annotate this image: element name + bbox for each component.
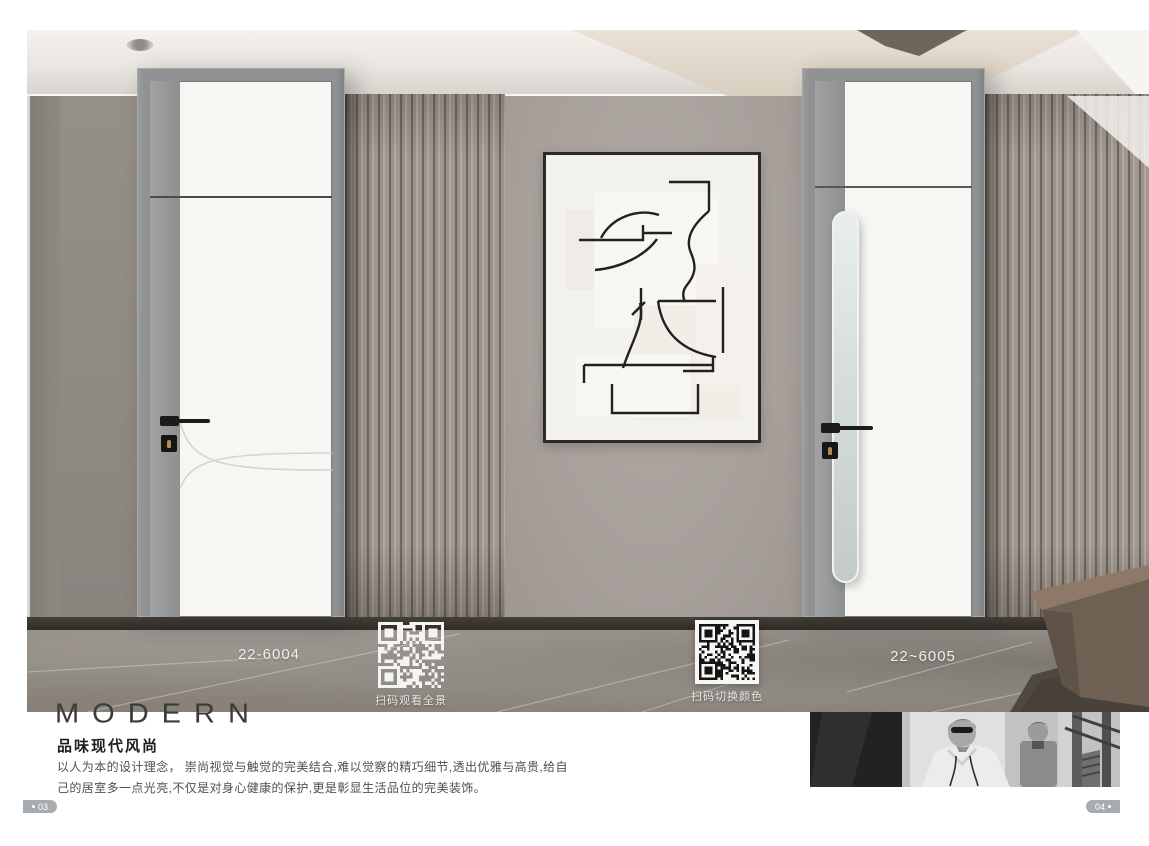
left-side-wall bbox=[30, 96, 60, 617]
lifestyle-photo bbox=[810, 712, 1120, 787]
door-right bbox=[802, 68, 985, 617]
downlight-icon bbox=[127, 39, 153, 51]
page-number-left: 03 bbox=[23, 800, 57, 813]
qr-code-panorama bbox=[378, 622, 444, 688]
door-right-groove-line bbox=[815, 186, 972, 188]
left-wall bbox=[60, 96, 137, 617]
section-heading: 品味现代风尚 bbox=[57, 735, 159, 756]
page-number-right-value: 04 bbox=[1095, 802, 1105, 812]
slat-shadow bbox=[985, 94, 999, 617]
badge-dot bbox=[32, 805, 35, 808]
section-body-line1: 以人为本的设计理念， 崇尚视觉与触觉的完美结合,难以觉察的精巧细节,透出优雅与高… bbox=[57, 757, 568, 778]
catalog-spread: 扫码观看全景 扫码切换颜色 22-6004 22~6005 MODERN 品味现… bbox=[0, 0, 1149, 846]
lifestyle-photo-art bbox=[810, 712, 1120, 787]
slat-panel-left bbox=[345, 94, 505, 617]
door-left-curved-grooves bbox=[150, 81, 332, 617]
section-body: 以人为本的设计理念， 崇尚视觉与触觉的完美结合,难以觉察的精巧细节,透出优雅与高… bbox=[57, 757, 568, 799]
door-right-lock bbox=[822, 442, 838, 459]
page-number-left-value: 03 bbox=[38, 802, 48, 812]
door-right-leaf bbox=[815, 81, 972, 617]
baseboard bbox=[27, 617, 1149, 630]
door-left-handle-lever bbox=[172, 419, 210, 423]
door-right-model-label: 22~6005 bbox=[833, 648, 1013, 665]
qr-code-color-switch-pattern bbox=[699, 624, 755, 680]
door-left-lock bbox=[161, 435, 177, 452]
bench bbox=[1002, 535, 1149, 712]
door-right-glass-capsule bbox=[832, 211, 859, 583]
keyhole-icon bbox=[828, 447, 832, 455]
qr-panorama-caption: 扫码观看全景 bbox=[341, 692, 481, 708]
qr-code-color-switch bbox=[695, 620, 759, 684]
door-left-model-label: 22-6004 bbox=[179, 646, 359, 663]
door-right-handle-lever bbox=[833, 426, 873, 430]
door-left bbox=[137, 68, 345, 617]
wall-art bbox=[546, 155, 758, 440]
slat-shadow bbox=[345, 94, 359, 617]
qr-color-caption: 扫码切换颜色 bbox=[657, 688, 797, 704]
brand-word: MODERN bbox=[55, 699, 262, 731]
interior-photo: 扫码观看全景 扫码切换颜色 22-6004 22~6005 bbox=[27, 30, 1149, 712]
page-number-right: 04 bbox=[1086, 800, 1120, 813]
keyhole-icon bbox=[167, 440, 171, 448]
door-left-leaf bbox=[150, 81, 332, 617]
wall-art-frame bbox=[543, 152, 761, 443]
badge-dot bbox=[1108, 805, 1111, 808]
section-body-line2: 己的居室多一点光亮,不仅是对身心健康的保护,更是彰显生活品位的完美装饰。 bbox=[57, 778, 568, 799]
